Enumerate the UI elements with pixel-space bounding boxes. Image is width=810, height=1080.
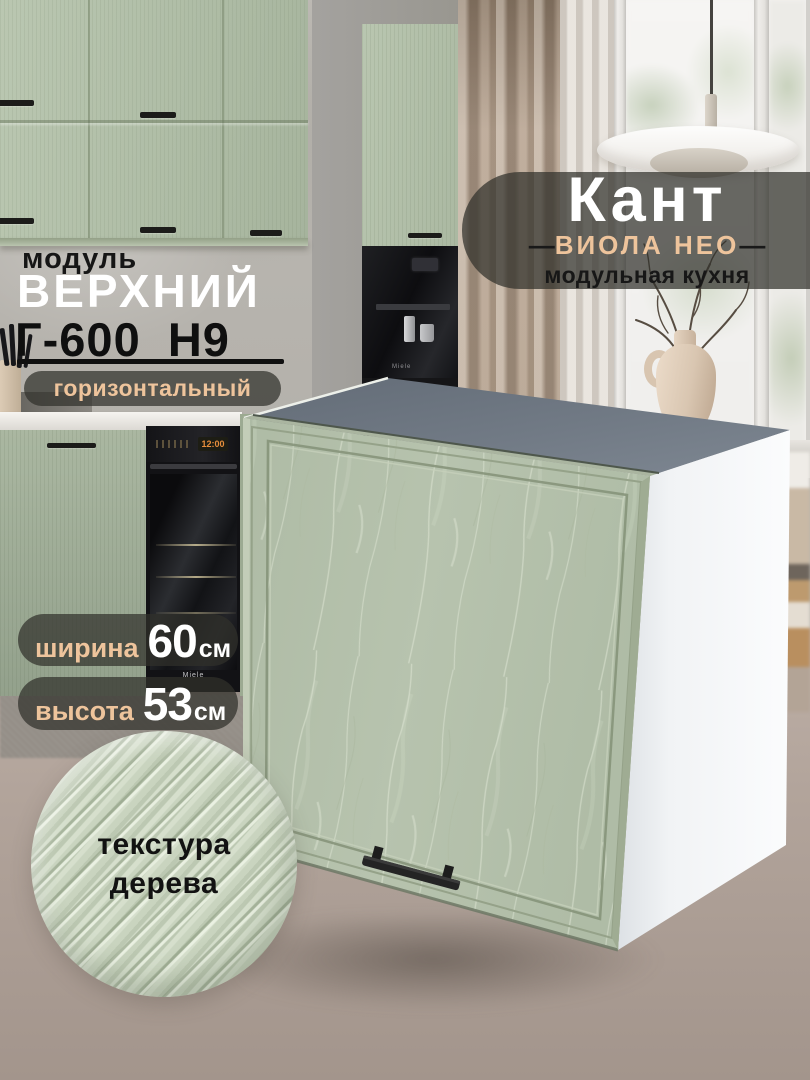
width-badge: ширина 60 см (18, 614, 238, 666)
width-unit: см (199, 635, 231, 664)
brand-series: —ВИОЛА НЕО— (529, 230, 766, 261)
brand-subtitle: модульная кухня (544, 262, 749, 289)
series-name: ВИОЛА НЕО (555, 230, 740, 260)
texture-swatch-circle: текстура дерева (31, 731, 297, 997)
brand-badge: Кант —ВИОЛА НЕО— модульная кухня (462, 172, 810, 289)
product-card: Miele (0, 0, 810, 1080)
brand-title: Кант (567, 172, 726, 230)
series-dash-right: — (739, 230, 765, 260)
series-dash-left: — (529, 230, 555, 260)
height-label: высота (35, 696, 134, 727)
module-code-underline (17, 359, 284, 364)
height-value: 53 (143, 677, 192, 731)
width-value: 60 (148, 614, 197, 668)
module-type: ВЕРХНИЙ (17, 264, 261, 318)
orientation-badge-label: горизонтальный (54, 375, 252, 402)
orientation-badge: горизонтальный (24, 371, 281, 406)
texture-note-line1: текстура (97, 825, 230, 864)
width-label: ширина (35, 633, 139, 664)
height-unit: см (194, 698, 226, 727)
height-badge: высота 53 см (18, 677, 238, 730)
texture-note-line2: дерева (110, 864, 218, 903)
